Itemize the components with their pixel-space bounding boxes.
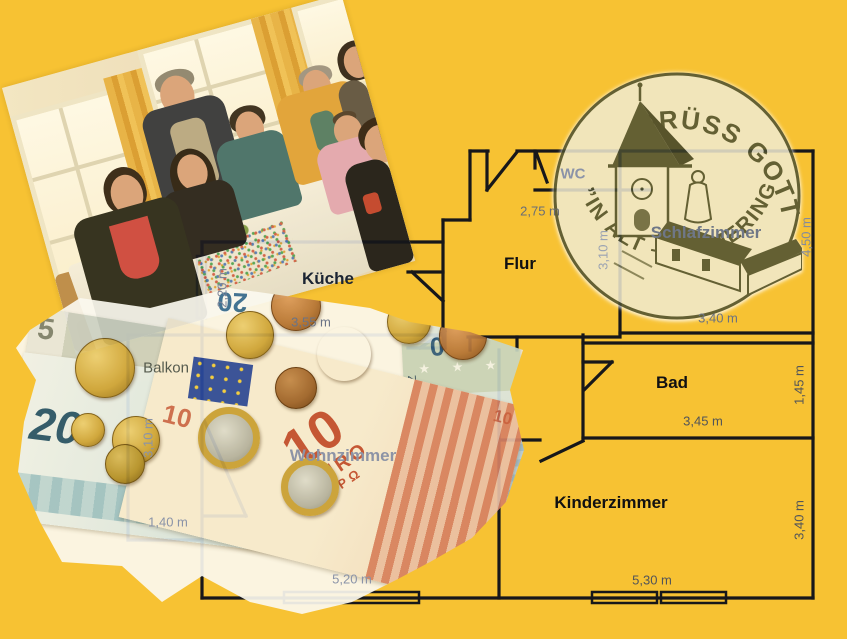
coin-gold	[226, 311, 274, 359]
coin-gold2	[105, 444, 145, 484]
coin-bronze2	[275, 367, 317, 409]
collage-page: 5 ★ ★ ★ 20 X13112Z 20 20 EURO ΕΥΡΩ 10 10…	[0, 0, 847, 639]
coin-euro	[281, 458, 339, 516]
coin-euro	[198, 407, 260, 469]
coin-gold	[71, 413, 105, 447]
grussgott-stamp: GRÜSS GOTT ”IN ALT – SIMMERING	[552, 71, 802, 321]
coin-brass	[317, 327, 371, 381]
coin-gold	[75, 338, 135, 398]
